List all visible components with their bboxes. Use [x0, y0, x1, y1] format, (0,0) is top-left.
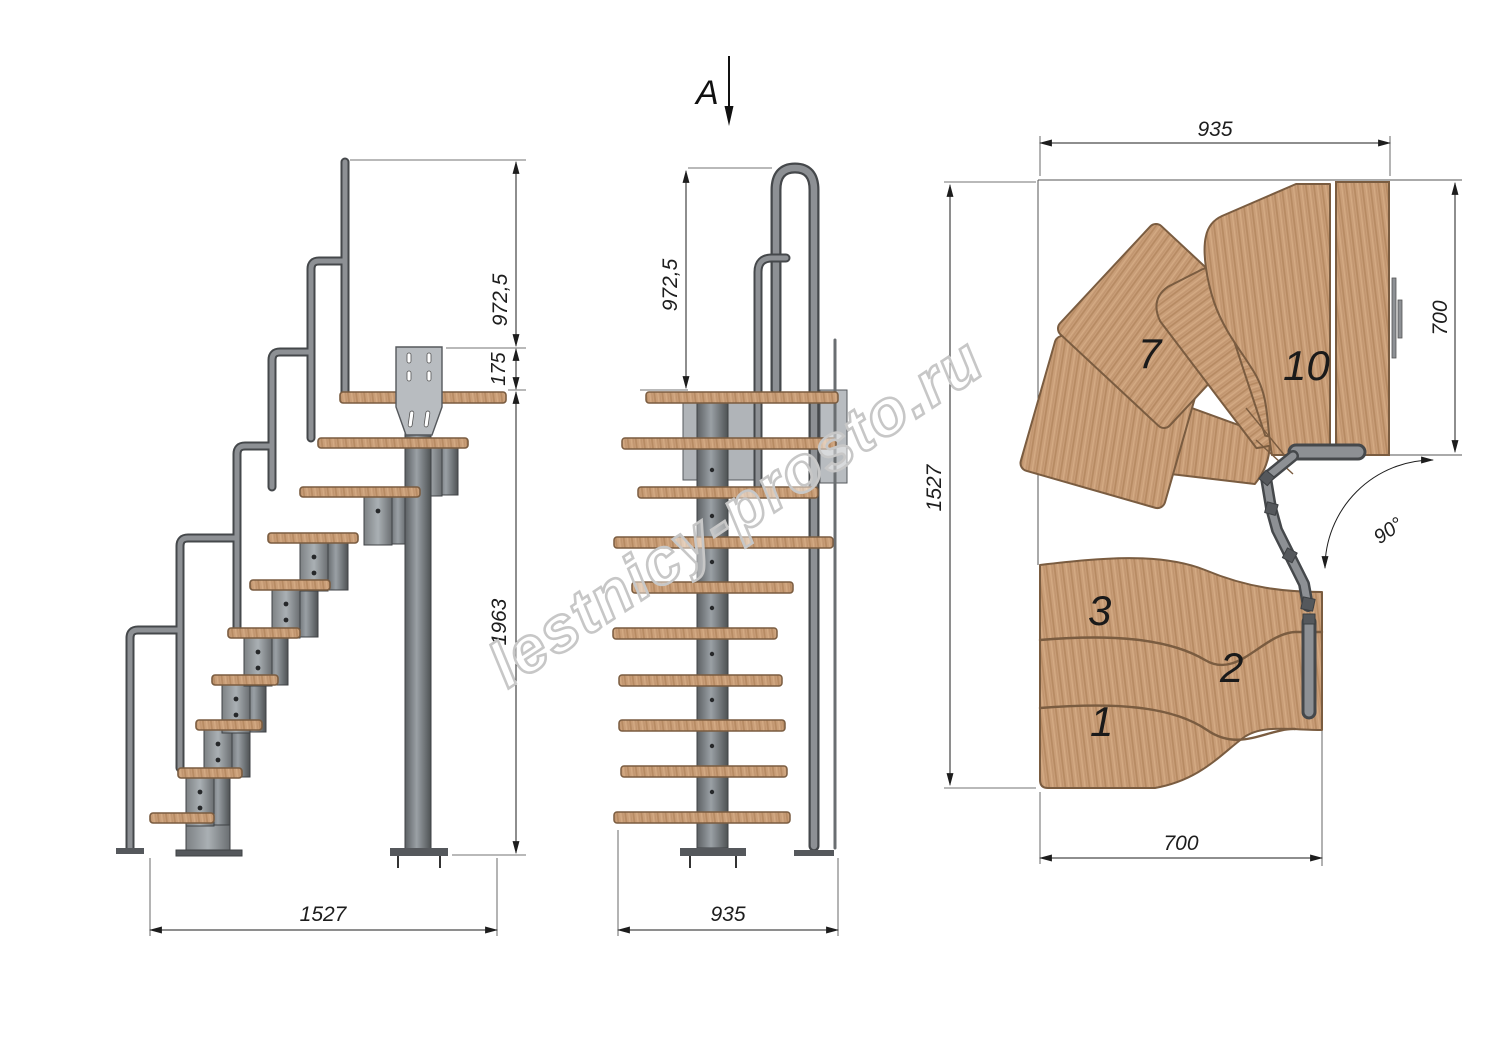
- dim-front-width: 935: [710, 903, 745, 926]
- rail-base-plate: [116, 848, 144, 854]
- dim-plan-top: 935: [1197, 118, 1232, 141]
- dim-plan-angle: 90°: [1370, 513, 1407, 548]
- dim-side-floor: 175: [488, 351, 510, 385]
- section-letter: A: [694, 74, 719, 112]
- section-arrowhead: [725, 106, 734, 126]
- side-view: 972,5 175 1963 1527: [116, 160, 526, 936]
- plan-tread-number-3: 3: [1088, 587, 1111, 634]
- plan-view: 935 700 1527 700 90° 7 10 3 2 1: [923, 118, 1462, 866]
- plan-tread-number-7: 7: [1138, 330, 1163, 377]
- dim-front-rail-height: 972,5: [659, 258, 682, 311]
- staircase-drawing: 972,5 175 1963 1527 A: [0, 0, 1500, 1061]
- section-arrow: A: [694, 56, 734, 126]
- side-mounting-plate: [396, 347, 442, 435]
- dim-plan-left: 1527: [923, 463, 946, 511]
- plan-lower-flight: [1040, 558, 1322, 788]
- plan-tread-number-10: 10: [1283, 342, 1330, 389]
- plan-tread-number-2: 2: [1219, 644, 1243, 691]
- dim-plan-right: 700: [1429, 300, 1452, 335]
- plan-angle-arc: [1325, 460, 1433, 568]
- plan-landing: [1336, 182, 1389, 455]
- dim-side-rail-height: 972,5: [489, 273, 512, 326]
- dim-plan-bottom: 700: [1163, 832, 1198, 855]
- dim-side-length: 1527: [300, 903, 348, 926]
- plan-tread-10: [1205, 184, 1330, 455]
- plan-wall-bracket: [1392, 278, 1402, 358]
- drawing-sheet: 972,5 175 1963 1527 A: [0, 0, 1500, 1061]
- plan-tread-number-1: 1: [1090, 698, 1113, 745]
- watermark: lestnicy-prosto.ru: [476, 323, 997, 701]
